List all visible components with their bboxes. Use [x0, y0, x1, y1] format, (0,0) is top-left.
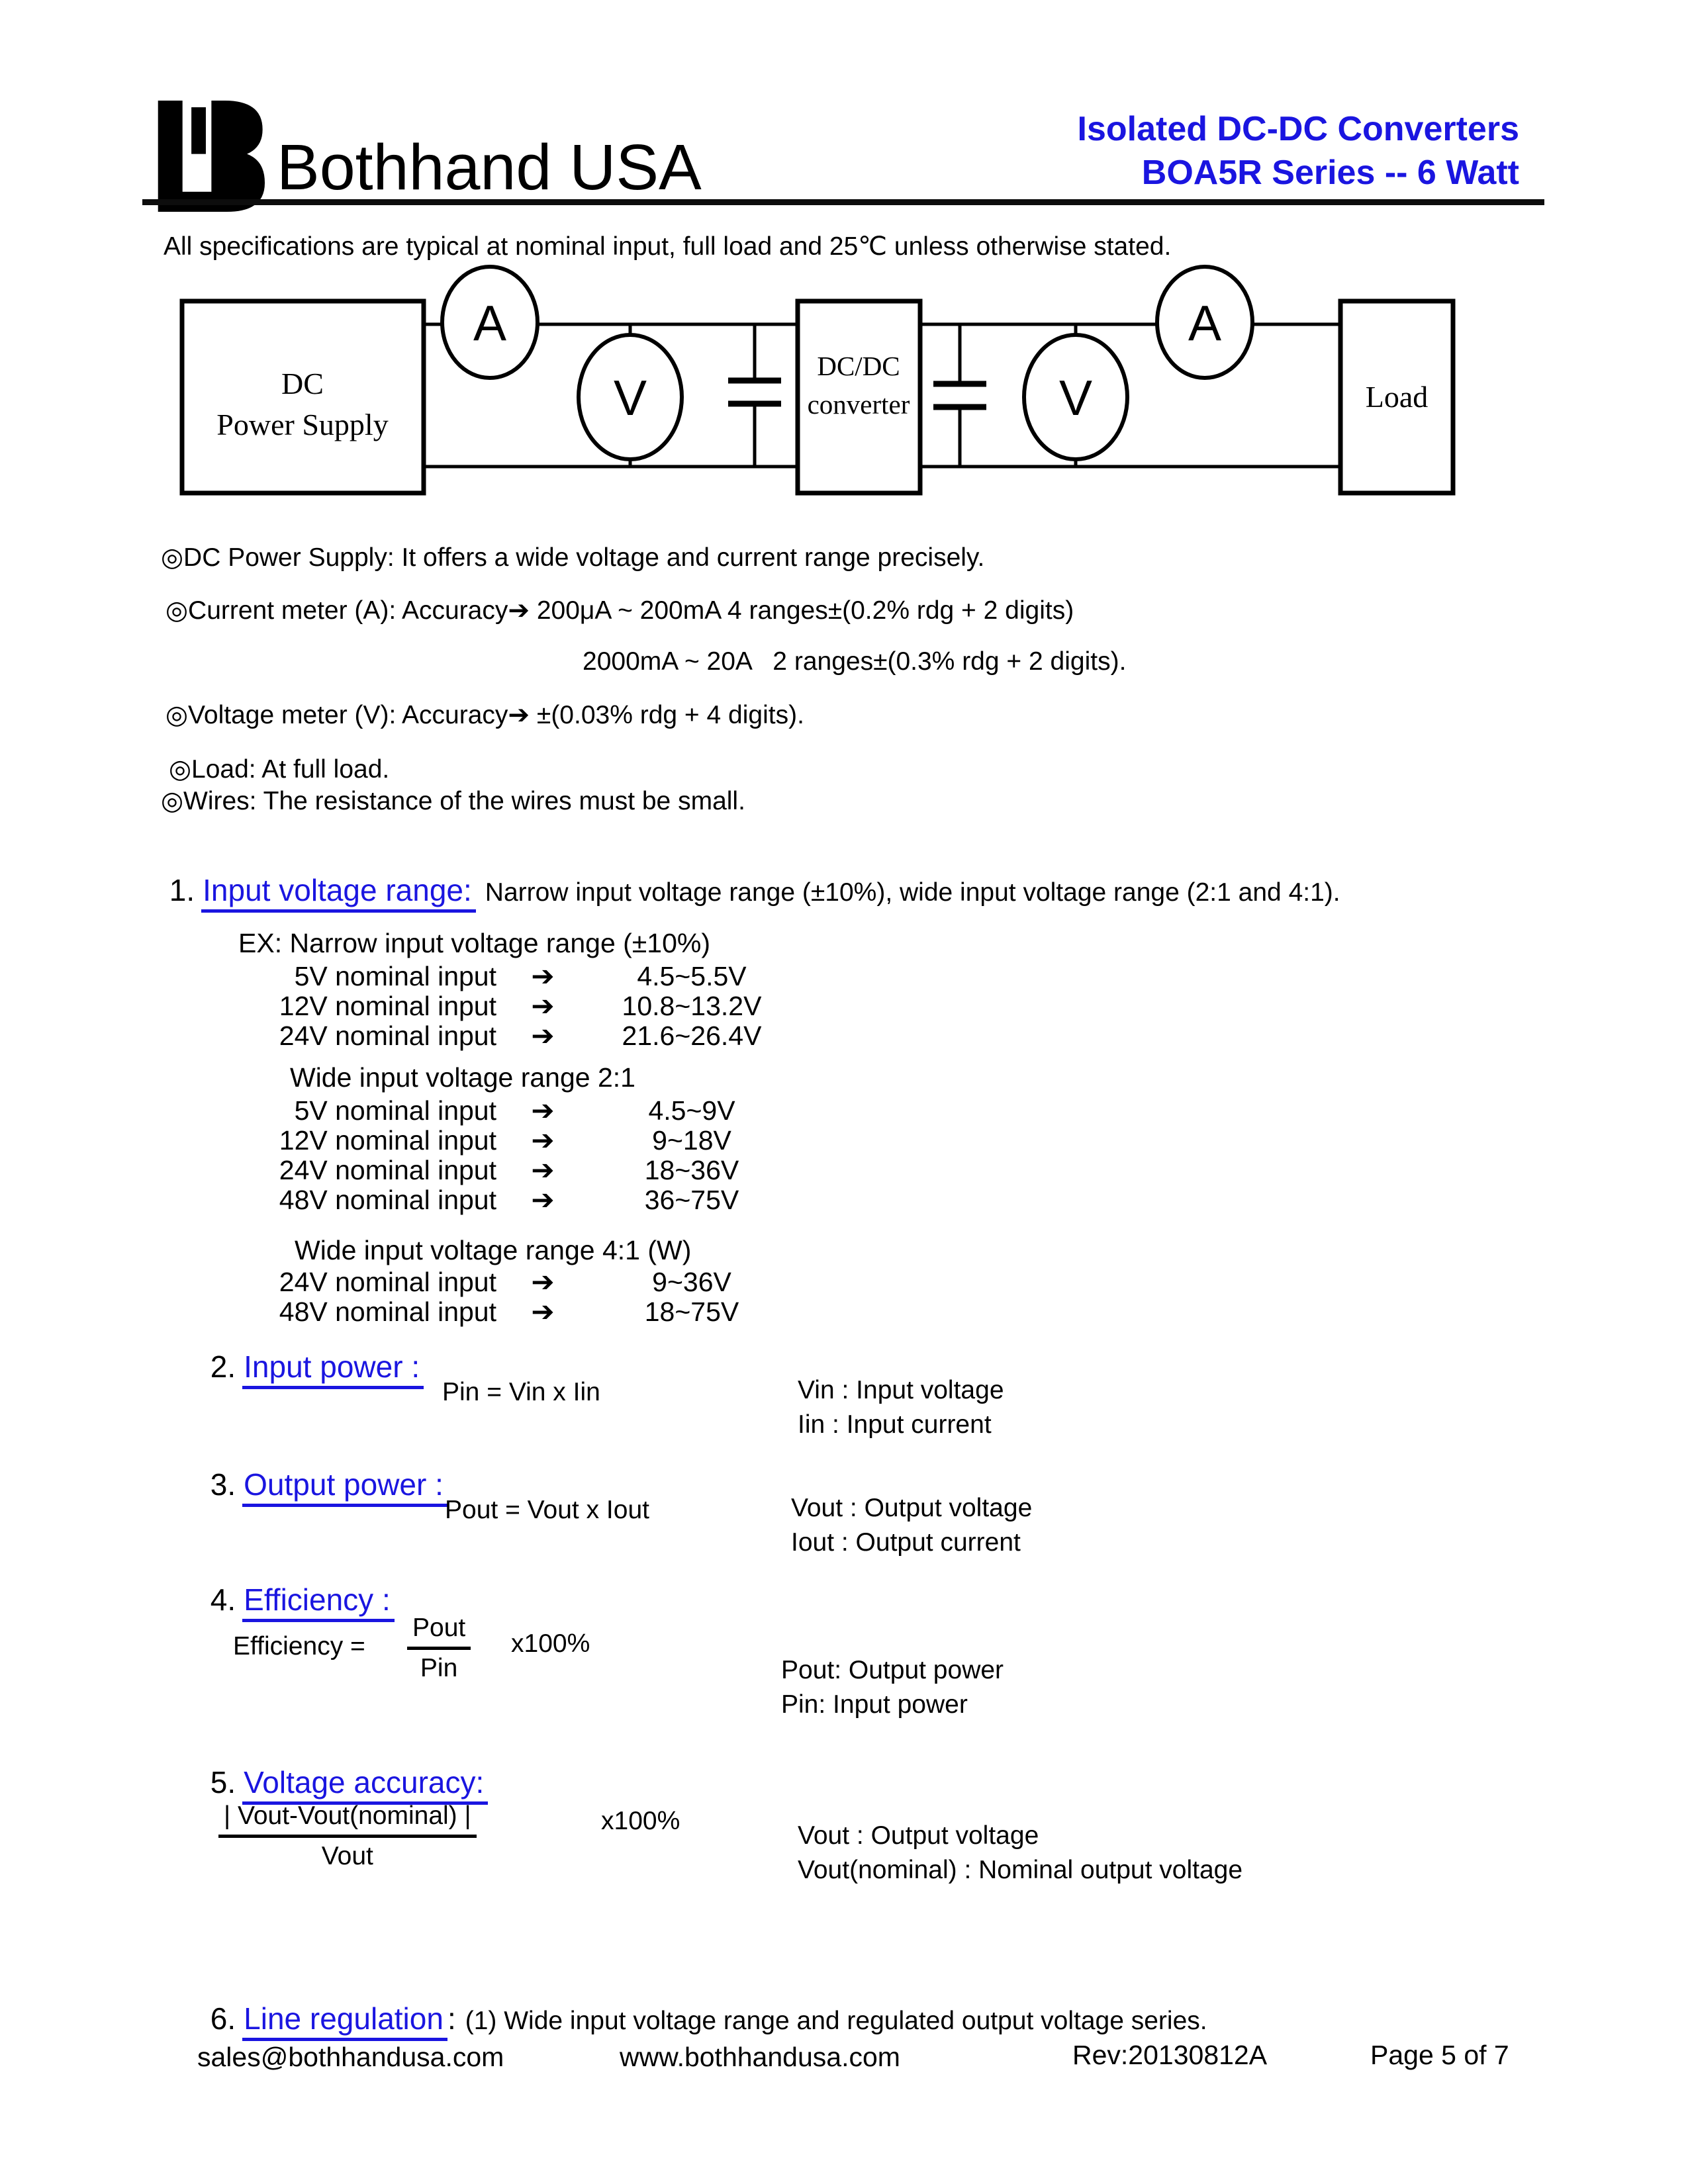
section-title: Line regulation [242, 2001, 447, 2041]
supply-label-line1: DC [281, 367, 324, 400]
note-load: ◎Load: At full load. [169, 754, 389, 784]
section-input-voltage-range: 1.Input voltage range:Narrow input volta… [158, 860, 1340, 920]
vin-definition: Vin : Input voltage [798, 1376, 1004, 1405]
footer-page-number: Page 5 of 7 [1370, 2040, 1509, 2071]
footer-email-link[interactable]: sales@bothhandusa.com [197, 2042, 504, 2073]
nominal-input-label: 5V nominal input [218, 961, 496, 992]
vout-nominal-definition: Vout(nominal) : Nominal output voltage [798, 1856, 1243, 1885]
wide-range-2to1-title: Wide input voltage range 2:1 [290, 1062, 635, 1093]
fraction-denominator: Pin [420, 1650, 457, 1683]
voltage-range-value: 18~36V [589, 1155, 794, 1186]
brand-name: Bothhand USA [277, 132, 702, 203]
section-number: 5. [211, 1765, 236, 1799]
doc-title-line1: Isolated DC-DC Converters [1078, 107, 1519, 151]
section-title: Input voltage range: [201, 873, 476, 913]
voltage-range-value: 4.5~5.5V [589, 961, 794, 992]
datasheet-page: Bothhand USA Isolated DC-DC Converters B… [0, 0, 1688, 2184]
wide-range-2to1-table: 5V nominal input➔4.5~9V 12V nominal inpu… [218, 1094, 794, 1213]
section-title: Output power : [242, 1467, 447, 1507]
output-voltmeter-letter: V [1059, 370, 1092, 426]
note-dc-power-supply: ◎DC Power Supply: It offers a wide volta… [161, 543, 984, 572]
arrow-icon: ➔ [496, 1154, 589, 1186]
section-number: 2. [211, 1349, 236, 1384]
voltage-row: 48V nominal input➔18~75V [218, 1295, 794, 1325]
section-number: 4. [211, 1582, 236, 1617]
note-wires: ◎Wires: The resistance of the wires must… [161, 786, 745, 816]
voltage-range-value: 21.6~26.4V [589, 1021, 794, 1052]
wide-range-4to1-table: 24V nominal input➔9~36V 48V nominal inpu… [218, 1265, 794, 1325]
wide-range-4to1-title: Wide input voltage range 4:1 (W) [295, 1235, 691, 1266]
pout-definition: Pout: Output power [781, 1656, 1004, 1685]
arrow-icon: ➔ [496, 1094, 589, 1126]
fraction-numerator: | Vout-Vout(nominal) | [218, 1801, 477, 1838]
voltage-row: 5V nominal input➔4.5~5.5V [218, 960, 794, 989]
voltage-row: 24V nominal input➔21.6~26.4V [218, 1019, 794, 1049]
efficiency-rhs: x100% [511, 1629, 590, 1659]
note-voltage-meter: ◎Voltage meter (V): Accuracy➔ ±(0.03% rd… [165, 700, 804, 730]
voltage-row: 5V nominal input➔4.5~9V [218, 1094, 794, 1124]
arrow-icon: ➔ [496, 1183, 589, 1216]
output-power-formula: Pout = Vout x Iout [445, 1496, 649, 1525]
section-efficiency: 4.Efficiency : [199, 1570, 395, 1629]
section-output-power: 3.Output power : [199, 1455, 447, 1514]
header-divider [142, 199, 1544, 205]
arrow-icon: ➔ [496, 960, 589, 992]
efficiency-fraction: Pout Pin [407, 1614, 471, 1683]
nominal-input-label: 24V nominal input [218, 1267, 496, 1298]
nominal-input-label: 5V nominal input [218, 1095, 496, 1126]
section-input-power: 2.Input power : [199, 1337, 424, 1396]
input-voltmeter-letter: V [614, 370, 647, 426]
efficiency-lhs: Efficiency = [233, 1632, 365, 1661]
note-current-meter-cont: 2000mA ~ 20A 2 ranges±(0.3% rdg + 2 digi… [583, 647, 1126, 676]
voltage-row: 24V nominal input➔9~36V [218, 1265, 794, 1295]
load-label: Load [1366, 380, 1429, 414]
voltage-row: 24V nominal input➔18~36V [218, 1154, 794, 1183]
iout-definition: Iout : Output current [791, 1528, 1021, 1557]
fraction-numerator: Pout [407, 1614, 471, 1650]
output-capacitor-icon [933, 384, 986, 407]
vout-definition2: Vout : Output voltage [798, 1821, 1039, 1850]
section-desc: (1) Wide input voltage range and regulat… [465, 2007, 1207, 2035]
section-number: 6. [211, 2001, 236, 2036]
voltage-accuracy-rhs: x100% [601, 1807, 680, 1836]
footer-revision: Rev:20130812A [1072, 2040, 1267, 2071]
section-number: 3. [211, 1467, 236, 1502]
voltage-range-value: 18~75V [589, 1297, 794, 1328]
voltage-row: 12V nominal input➔9~18V [218, 1124, 794, 1154]
converter-label-line2: converter [808, 389, 910, 420]
input-capacitor-icon [728, 381, 781, 404]
bothhand-logo-icon [154, 101, 265, 212]
input-ammeter-letter: A [473, 295, 506, 351]
section-number: 1. [169, 873, 195, 907]
input-power-formula: Pin = Vin x Iin [442, 1378, 600, 1407]
nominal-input-label: 48V nominal input [218, 1185, 496, 1216]
voltage-range-value: 9~18V [589, 1125, 794, 1156]
output-ammeter-letter: A [1188, 295, 1221, 351]
arrow-icon: ➔ [496, 1295, 589, 1328]
vout-definition: Vout : Output voltage [791, 1494, 1032, 1523]
spec-conditions-note: All specifications are typical at nomina… [164, 232, 1171, 261]
voltage-accuracy-fraction: | Vout-Vout(nominal) | Vout [218, 1801, 477, 1871]
voltage-range-value: 4.5~9V [589, 1095, 794, 1126]
iin-definition: Iin : Input current [798, 1410, 992, 1439]
doc-title: Isolated DC-DC Converters BOA5R Series -… [1078, 107, 1519, 195]
nominal-input-label: 48V nominal input [218, 1297, 496, 1328]
test-setup-diagram: DC Power Supply A V DC/DC converter V A … [172, 261, 1470, 526]
nominal-input-label: 12V nominal input [218, 991, 496, 1022]
voltage-row: 48V nominal input➔36~75V [218, 1183, 794, 1213]
section-desc: Narrow input voltage range (±10%), wide … [485, 878, 1340, 907]
ex-narrow-range-title: EX: Narrow input voltage range (±10%) [238, 928, 710, 959]
voltage-row: 12V nominal input➔10.8~13.2V [218, 989, 794, 1019]
voltage-range-value: 36~75V [589, 1185, 794, 1216]
voltage-range-value: 10.8~13.2V [589, 991, 794, 1022]
section-title: Voltage accuracy: [242, 1765, 488, 1805]
section-title: Efficiency : [242, 1582, 395, 1622]
section-title: Input power : [242, 1349, 424, 1389]
arrow-icon: ➔ [496, 1265, 589, 1298]
pin-definition: Pin: Input power [781, 1690, 968, 1719]
nominal-input-label: 24V nominal input [218, 1021, 496, 1052]
arrow-icon: ➔ [496, 1124, 589, 1156]
fraction-denominator: Vout [322, 1838, 373, 1871]
narrow-range-table: 5V nominal input➔4.5~5.5V 12V nominal in… [218, 960, 794, 1049]
nominal-input-label: 12V nominal input [218, 1125, 496, 1156]
note-current-meter: ◎Current meter (A): Accuracy➔ 200μA ~ 20… [165, 596, 1074, 625]
footer-website-link[interactable]: www.bothhandusa.com [620, 2042, 900, 2073]
converter-label-line1: DC/DC [817, 351, 900, 381]
arrow-icon: ➔ [496, 989, 589, 1022]
section-colon: : [447, 2001, 456, 2036]
section-line-regulation: 6.Line regulation:(1) Wide input voltage… [199, 1989, 1207, 2048]
voltage-range-value: 9~36V [589, 1267, 794, 1298]
arrow-icon: ➔ [496, 1019, 589, 1052]
doc-title-line2: BOA5R Series -- 6 Watt [1078, 151, 1519, 195]
supply-label-line2: Power Supply [216, 408, 388, 441]
nominal-input-label: 24V nominal input [218, 1155, 496, 1186]
